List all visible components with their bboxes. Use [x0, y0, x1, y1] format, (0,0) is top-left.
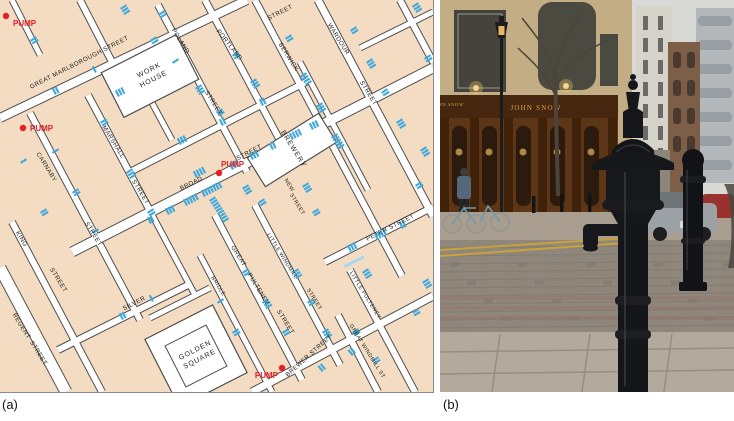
brick-window — [687, 80, 695, 96]
pub-pilaster — [538, 118, 547, 214]
window-slit — [643, 126, 648, 140]
window-slit — [658, 82, 663, 96]
pavement-slabs — [440, 332, 734, 392]
window-glow — [520, 149, 527, 156]
panel-b-pump-photo: JOHN SNOW JOHN SNOW — [440, 0, 734, 392]
glass-band — [698, 88, 732, 98]
window-slit — [658, 38, 663, 52]
window-slit — [658, 16, 663, 30]
window-glow — [588, 149, 595, 156]
window-slit — [658, 104, 663, 118]
panel-a-cholera-map: GREAT MARLBOROUGH STREETPOLANDSTREETPORT… — [0, 0, 433, 392]
pump-shaft — [618, 220, 648, 392]
brick-window — [687, 108, 695, 124]
brick-window — [687, 52, 695, 68]
pub-arch-window — [482, 126, 497, 206]
cobble — [671, 281, 680, 285]
brick-window — [673, 80, 681, 96]
cobble — [518, 263, 527, 267]
pump-body — [606, 168, 660, 204]
cobble — [467, 281, 476, 285]
pump-dot — [20, 125, 26, 131]
pump-dot — [3, 13, 9, 19]
cobble — [603, 281, 612, 285]
brick-course — [440, 296, 734, 300]
window-slit — [643, 104, 648, 118]
bollard — [679, 149, 707, 291]
cobble — [586, 263, 595, 267]
brick-course — [440, 306, 734, 310]
panel-a-label: (a) — [2, 397, 18, 412]
glass-band — [698, 64, 732, 74]
pump-label: PUMP — [221, 160, 245, 169]
glass-band — [698, 112, 732, 122]
window-slit — [643, 82, 648, 96]
window-slit — [643, 16, 648, 30]
pub-pilaster — [572, 118, 581, 214]
pump-label: PUMP — [13, 19, 37, 28]
pub-sign-text-left: JOHN SNOW — [440, 102, 464, 107]
glass-band — [698, 16, 732, 26]
brick-window — [673, 52, 681, 68]
figure-canvas: GREAT MARLBOROUGH STREETPOLANDSTREETPORT… — [0, 0, 734, 421]
panel-b-label: (b) — [443, 397, 459, 412]
window-slit — [643, 38, 648, 52]
pub-pilaster — [440, 118, 449, 214]
window-glow — [486, 149, 493, 156]
pump-urn — [623, 108, 643, 138]
cholera-map-svg: GREAT MARLBOROUGH STREETPOLANDSTREETPORT… — [0, 0, 434, 393]
cobble — [450, 263, 459, 267]
pump-finial-tip — [630, 74, 636, 80]
brick-window — [673, 136, 681, 152]
window-glow — [456, 149, 463, 156]
glass-band — [698, 136, 732, 146]
glass-band — [698, 40, 732, 50]
pub-pilaster — [470, 118, 479, 214]
pub-corner-bay-window — [538, 2, 596, 90]
pump-photo-svg: JOHN SNOW JOHN SNOW — [440, 0, 734, 392]
brick-window — [673, 108, 681, 124]
pump-label: PUMP — [30, 124, 54, 133]
pub-arch-window — [516, 126, 531, 206]
pub-pilaster — [504, 118, 513, 214]
pump-dot — [279, 365, 285, 371]
window-slit — [643, 60, 648, 74]
brick-course — [440, 316, 734, 320]
cobble — [535, 281, 544, 285]
window-slit — [658, 60, 663, 74]
pump-dot — [216, 170, 222, 176]
cobble — [654, 263, 663, 267]
pump-label: PUMP — [255, 371, 279, 380]
window-slit — [658, 126, 663, 140]
